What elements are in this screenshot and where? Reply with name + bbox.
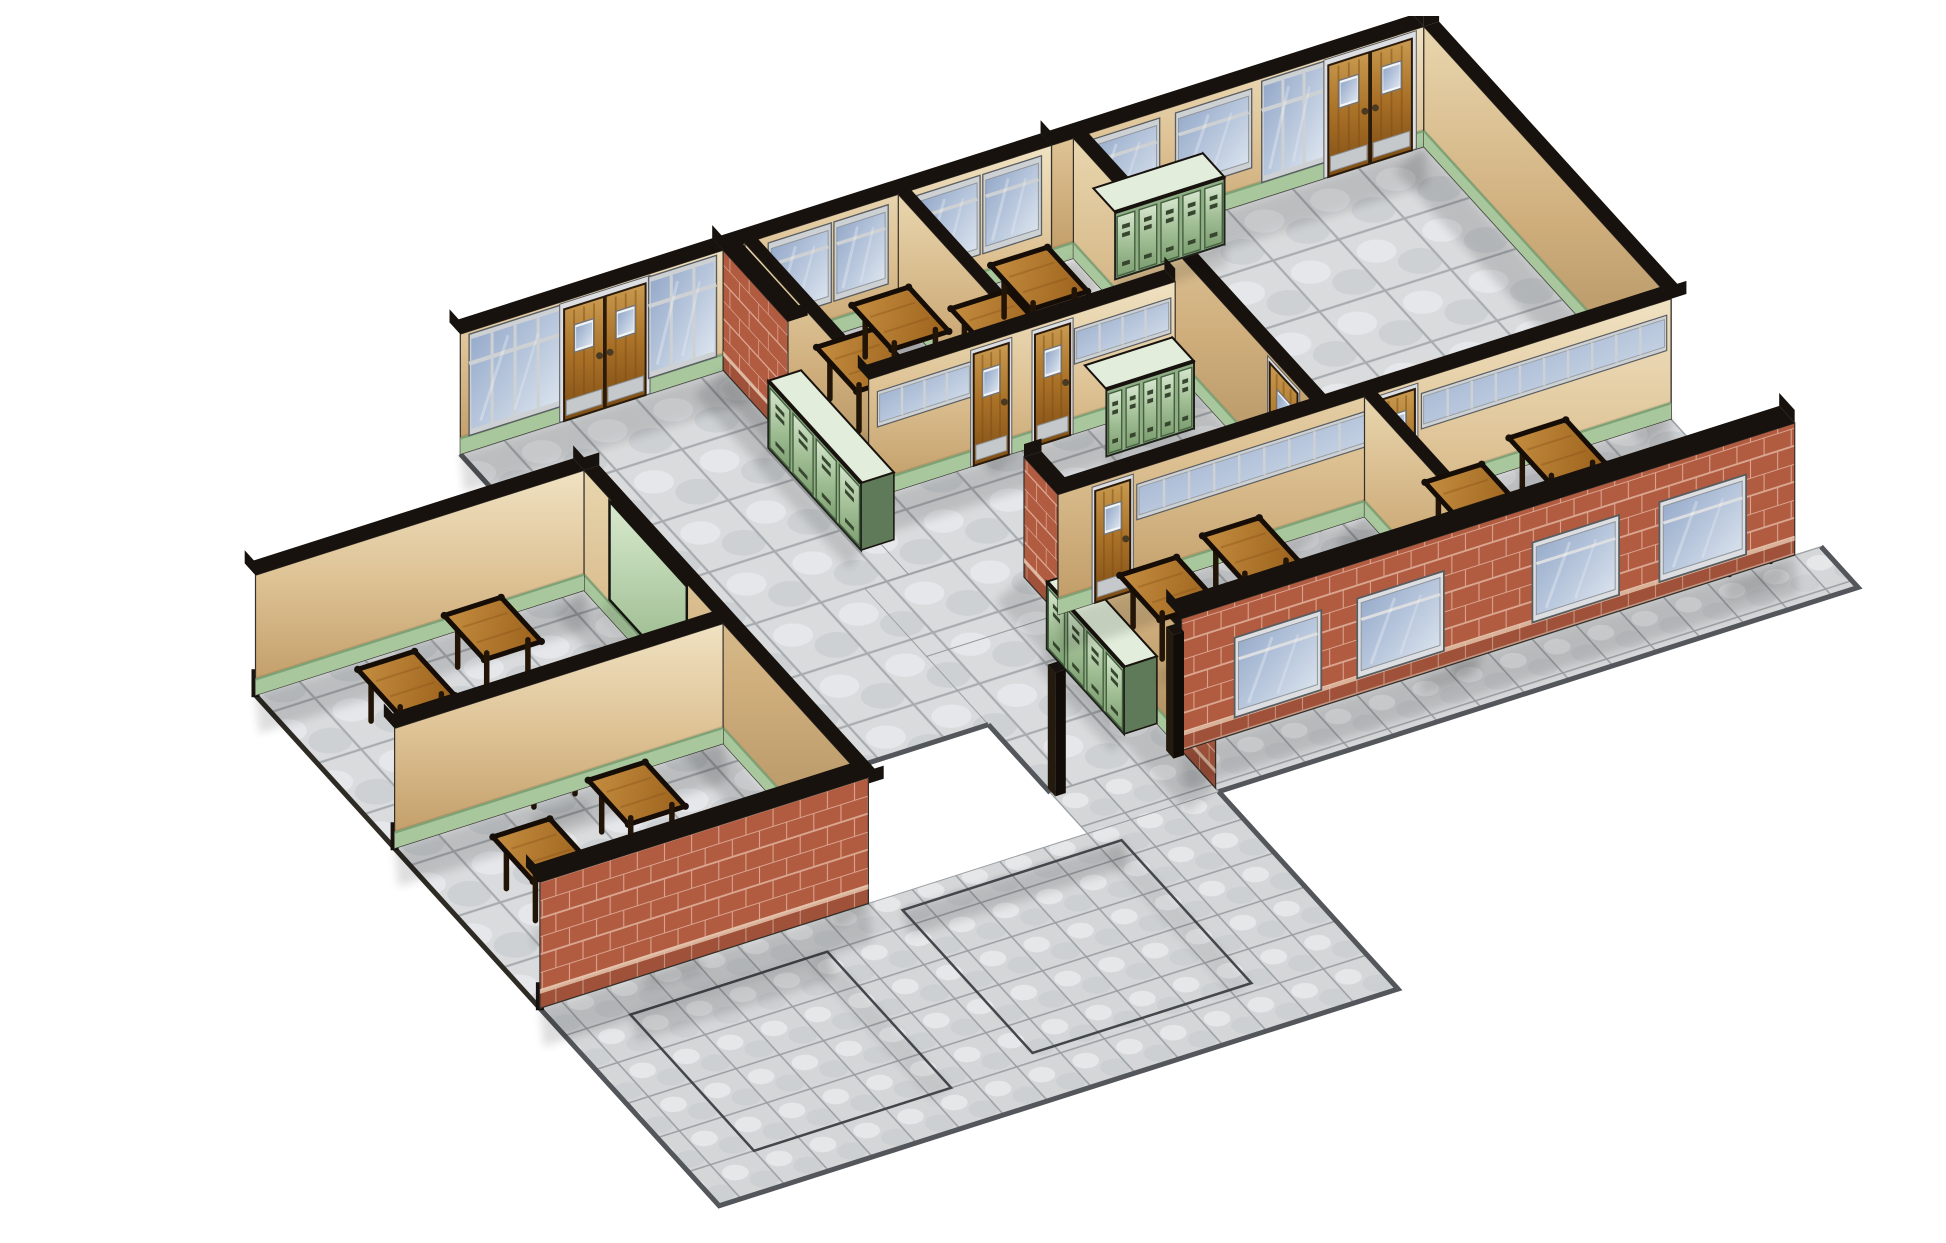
building-cutaway-render	[40, 16, 1946, 1227]
doorway-post	[1048, 661, 1066, 796]
doorway-post	[1166, 624, 1184, 759]
scene-canvas	[40, 16, 1946, 1227]
